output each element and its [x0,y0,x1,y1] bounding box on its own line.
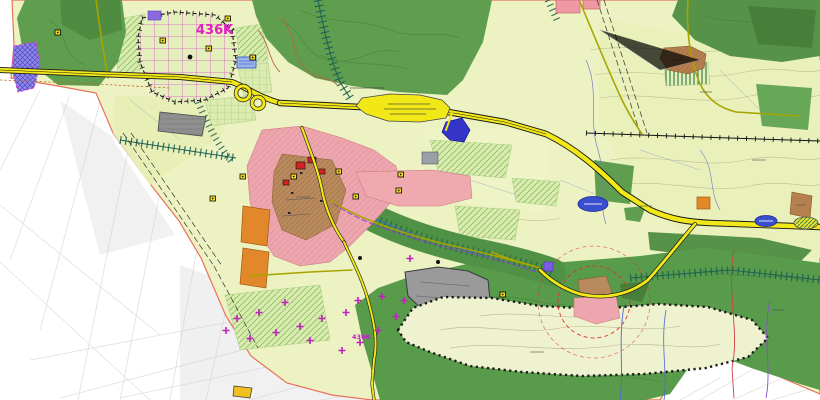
forest-right-mid [756,84,812,130]
zoning-plan-map: 436K [0,0,820,400]
forest-topright-dark [748,6,816,48]
map-viewport[interactable]: 436K [0,0,820,400]
zone-436k: 436K [138,12,236,102]
planned-roundabout [794,217,818,229]
zone-436k-small-label: 436K [352,333,372,341]
zone-436k-label: 436K [196,23,234,38]
